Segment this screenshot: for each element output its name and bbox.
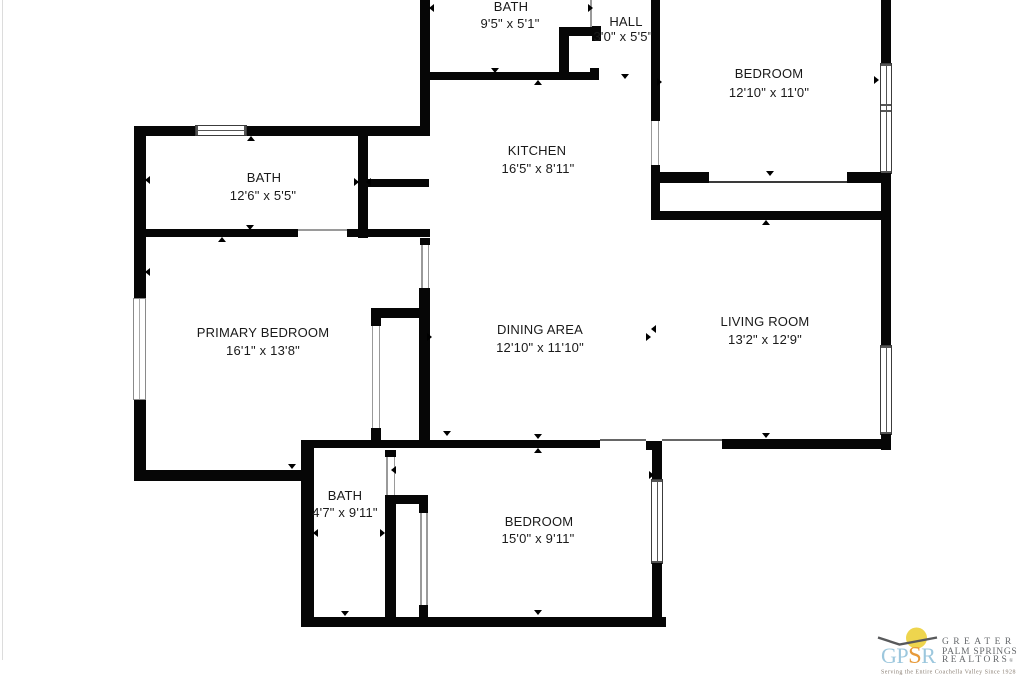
- svg-text:GREATER: GREATER: [942, 637, 1016, 647]
- svg-text:GPSR: GPSR: [881, 642, 936, 669]
- svg-text:REALTORS®: REALTORS®: [942, 655, 1015, 665]
- svg-text:Serving the Entire Coachella V: Serving the Entire Coachella Valley Sinc…: [881, 670, 1016, 676]
